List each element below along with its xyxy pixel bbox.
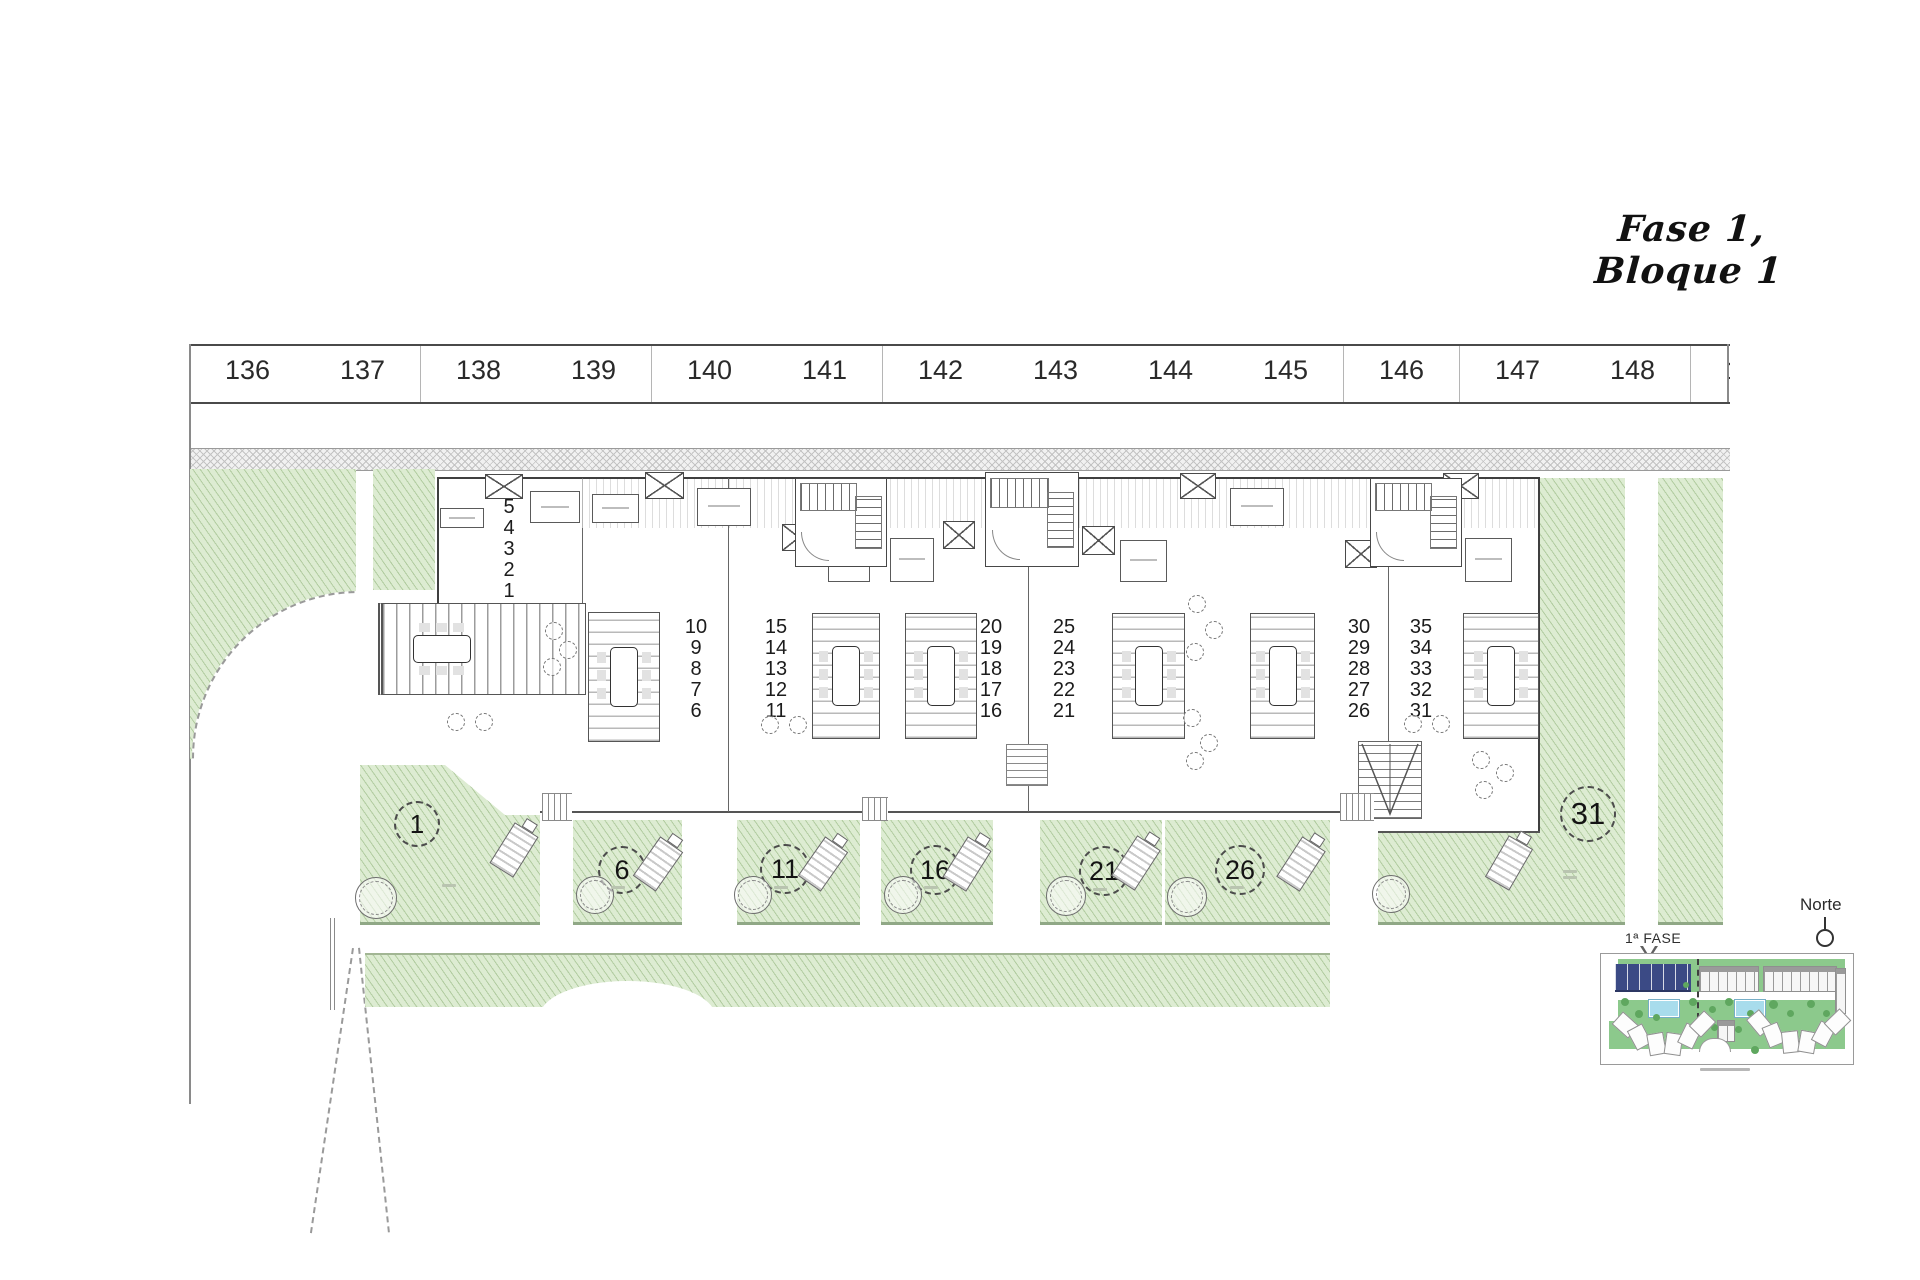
parking-space-number: 147 <box>1460 346 1575 402</box>
parking-space-number: 137 <box>305 346 421 402</box>
unit-number: 18 <box>971 659 1011 680</box>
shaft-xbox <box>485 474 523 499</box>
unit-stack-16-20: 2019181716 <box>971 617 1011 722</box>
door-arc <box>1376 532 1404 561</box>
tree-icon <box>884 876 922 914</box>
garden-circle-11-label: 11 <box>771 854 799 885</box>
garden-circle-31: 31 <box>1560 786 1616 842</box>
minimap-tree-icon <box>1751 1046 1759 1054</box>
green-column-left <box>373 469 435 590</box>
plant-icon <box>1205 621 1223 639</box>
unit-number: 33 <box>1401 659 1441 680</box>
plant-icon <box>1183 709 1201 727</box>
unit-number: 16 <box>971 701 1011 722</box>
room <box>1120 540 1167 582</box>
unit-stack-31-35: 3534333231 <box>1401 617 1441 722</box>
minimap-phase1-block <box>1615 964 1691 990</box>
location-minimap <box>1600 953 1854 1065</box>
unit-number: 8 <box>676 659 716 680</box>
green-strip-right <box>1658 478 1723 925</box>
tree-icon <box>576 876 614 914</box>
road-curve-cutout <box>190 585 358 761</box>
tree-icon <box>355 877 397 919</box>
parking-end-line <box>1727 344 1729 402</box>
parking-space-number: 149 <box>1691 346 1730 402</box>
terrace-deck <box>1250 613 1315 739</box>
outdoor-table <box>1135 646 1163 706</box>
phase-label: 1ª FASE <box>1625 930 1681 946</box>
unit-number: 34 <box>1401 638 1441 659</box>
minimap-building-row-a <box>1699 966 1759 992</box>
tree-icon <box>734 876 772 914</box>
road-curve-arc <box>192 591 358 761</box>
minimap-phase-boundary <box>1697 959 1699 1019</box>
parking-space-number: 140 <box>652 346 767 402</box>
unit-number: 19 <box>971 638 1011 659</box>
unit-stack-21-25: 2524232221 <box>1044 617 1084 722</box>
unit-number: 22 <box>1044 680 1084 701</box>
shaft-xbox <box>645 472 684 499</box>
area-label <box>1093 888 1107 891</box>
minimap-tree-icon <box>1653 1014 1660 1021</box>
room <box>1465 538 1512 582</box>
area-label <box>1563 870 1577 873</box>
plant-icon <box>1200 734 1218 752</box>
area-label <box>611 886 625 889</box>
minimap-tree-icon <box>1735 1026 1742 1033</box>
walkway-stairs <box>1006 744 1048 786</box>
plant-icon <box>1432 715 1450 733</box>
unit-number: 4 <box>489 518 529 539</box>
unit-number: 32 <box>1401 680 1441 701</box>
terrace-deck <box>1463 613 1539 739</box>
room <box>890 538 934 582</box>
terrace-deck <box>588 612 660 742</box>
minimap-tree-icon <box>1823 1010 1830 1017</box>
unit-number: 23 <box>1044 659 1084 680</box>
plant-icon <box>761 716 779 734</box>
unit-number: 12 <box>756 680 796 701</box>
unit-number: 29 <box>1339 638 1379 659</box>
unit-number: 15 <box>756 617 796 638</box>
plant-icon <box>545 622 563 640</box>
minimap-tree-icon <box>1769 1000 1778 1009</box>
unit-number: 14 <box>756 638 796 659</box>
unit-stack-6-10: 109876 <box>676 617 716 722</box>
area-label <box>1230 886 1244 889</box>
plant-icon <box>447 713 465 731</box>
door-arc <box>992 530 1021 561</box>
parking-strip: 1361371381391401411421431441451461471481… <box>190 344 1730 404</box>
stair-run <box>855 496 882 548</box>
terrace-deck <box>812 613 880 739</box>
plant-icon <box>1188 595 1206 613</box>
minimap-tree-icon <box>1683 982 1689 988</box>
room <box>592 494 639 523</box>
unit-number: 1 <box>489 581 529 602</box>
unit-number: 3 <box>489 539 529 560</box>
stair-treads <box>990 478 1049 508</box>
unit-number: 35 <box>1401 617 1441 638</box>
shaft-xbox <box>1180 473 1216 499</box>
room <box>530 491 580 523</box>
room <box>440 508 484 528</box>
plant-icon <box>1186 643 1204 661</box>
door-arc <box>801 532 829 561</box>
unit-number: 2 <box>489 560 529 581</box>
path-edge-line-a <box>330 918 331 1010</box>
unit-number: 27 <box>1339 680 1379 701</box>
outdoor-table <box>1269 646 1297 706</box>
unit-stack-26-30: 3029282726 <box>1339 617 1379 722</box>
terrace-deck <box>1112 613 1185 739</box>
green-strip-bottom <box>365 953 1330 1007</box>
shaft-xbox <box>1082 526 1115 555</box>
parking-space-number: 139 <box>536 346 652 402</box>
pergola-deck <box>378 603 586 695</box>
room <box>697 488 751 526</box>
minimap-caption-line <box>1700 1068 1750 1071</box>
outdoor-table <box>1487 646 1515 706</box>
stair-room <box>1370 478 1462 567</box>
building-bottom-wall-b <box>1378 831 1540 833</box>
room <box>1230 488 1284 526</box>
parking-space-number: 143 <box>998 346 1113 402</box>
unit-stack-1-5: 54321 <box>489 497 529 602</box>
building-bottom-wall-a <box>540 811 1378 813</box>
parking-space-number: 142 <box>883 346 998 402</box>
plant-icon <box>1496 764 1514 782</box>
wave-cutout <box>540 981 715 1007</box>
minimap-building-row-b <box>1763 966 1837 992</box>
area-label <box>1563 876 1577 879</box>
unit-number: 28 <box>1339 659 1379 680</box>
minimap-tree-icon <box>1787 1010 1794 1017</box>
tree-icon <box>1372 875 1410 913</box>
terrace-deck <box>905 613 977 739</box>
unit-number: 25 <box>1044 617 1084 638</box>
plan-title: Fase 1, Bloque 1 <box>1542 208 1838 292</box>
unit-number: 6 <box>676 701 716 722</box>
minimap-tree-icon <box>1635 1010 1643 1018</box>
outdoor-table <box>832 646 860 706</box>
garden-plot-31-strip <box>1540 478 1625 925</box>
unit-number: 26 <box>1339 701 1379 722</box>
plant-icon <box>1472 751 1490 769</box>
garden-circle-31-label: 31 <box>1571 796 1605 832</box>
unit-number: 13 <box>756 659 796 680</box>
north-label: Norte <box>1800 895 1842 915</box>
outdoor-table <box>610 647 638 707</box>
stair-run <box>1430 496 1457 548</box>
minimap-tree-icon <box>1725 998 1733 1006</box>
plant-icon <box>559 641 577 659</box>
stair-room <box>795 478 887 567</box>
plant-icon <box>1186 752 1204 770</box>
shaft-xbox <box>943 521 975 549</box>
unit-number: 10 <box>676 617 716 638</box>
site-plan-canvas: Fase 1, Bloque 1 13613713813914014114214… <box>0 0 1920 1280</box>
outdoor-table <box>927 646 955 706</box>
road-dash-left <box>310 948 354 1233</box>
unit-number: 24 <box>1044 638 1084 659</box>
parking-space-number: 145 <box>1228 346 1344 402</box>
stair-treads <box>800 483 858 511</box>
garden-circle-1-label: 1 <box>410 809 424 840</box>
pavement-hatch-band <box>190 448 1730 471</box>
tree-icon <box>1046 876 1086 916</box>
garden-circle-6-label: 6 <box>614 855 629 886</box>
unit-number: 17 <box>971 680 1011 701</box>
stair-run <box>1047 492 1075 548</box>
parking-space-number: 138 <box>421 346 536 402</box>
unit-divider-2 <box>728 478 729 812</box>
plant-icon <box>789 716 807 734</box>
garden-circle-1: 1 <box>394 801 440 847</box>
minimap-tree-icon <box>1709 1006 1716 1013</box>
garden-steps <box>862 797 888 821</box>
outdoor-table <box>413 635 471 663</box>
garden-1-edge <box>360 922 540 925</box>
unit-number: 21 <box>1044 701 1084 722</box>
parking-space-number: 136 <box>190 346 305 402</box>
parking-space-number: 144 <box>1113 346 1228 402</box>
unit-number: 20 <box>971 617 1011 638</box>
tree-icon <box>1167 877 1207 917</box>
garden-steps <box>1340 793 1374 821</box>
north-arrow-icon <box>1812 916 1838 950</box>
area-label <box>774 886 788 889</box>
area-label <box>924 886 938 889</box>
minimap-building-right-edge <box>1835 968 1846 1014</box>
parking-space-number: 148 <box>1575 346 1691 402</box>
path-edge-line-b <box>334 918 335 1010</box>
plant-icon <box>1404 715 1422 733</box>
stair-treads <box>1375 483 1433 511</box>
plant-icon <box>475 713 493 731</box>
parking-space-number: 141 <box>767 346 883 402</box>
unit-stack-11-15: 1514131211 <box>756 617 796 722</box>
unit-number: 30 <box>1339 617 1379 638</box>
unit-number: 9 <box>676 638 716 659</box>
minimap-tree-icon <box>1807 1000 1815 1008</box>
garden-steps <box>542 793 572 821</box>
parking-space-number: 146 <box>1344 346 1460 402</box>
stair-room <box>985 472 1079 567</box>
minimap-tree-icon <box>1621 998 1629 1006</box>
garden-circle-26-label: 26 <box>1225 855 1255 886</box>
plant-icon <box>543 658 561 676</box>
unit-number: 7 <box>676 680 716 701</box>
minimap-tree-icon <box>1689 998 1697 1006</box>
building-left-wall <box>437 477 439 604</box>
area-label <box>442 884 456 887</box>
unit-number: 5 <box>489 497 529 518</box>
plant-icon <box>1475 781 1493 799</box>
